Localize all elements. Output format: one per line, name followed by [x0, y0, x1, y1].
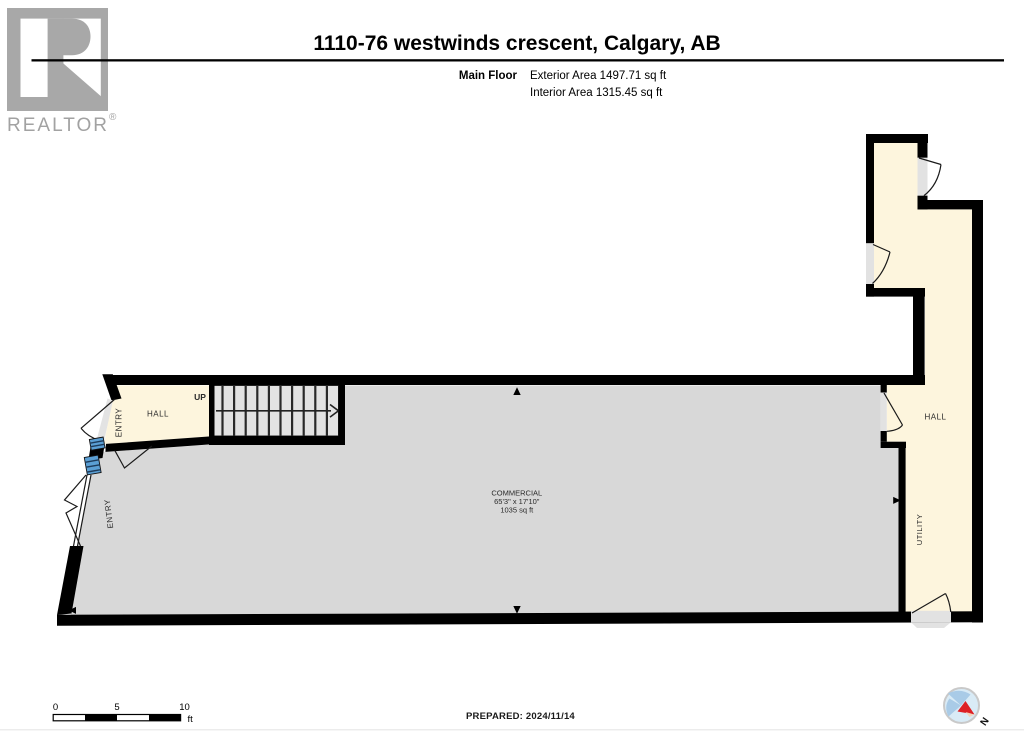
svg-text:ENTRY: ENTRY [115, 408, 124, 438]
svg-text:10: 10 [179, 702, 190, 713]
svg-text:1110-76 westwinds crescent, Ca: 1110-76 westwinds crescent, Calgary, AB [313, 32, 720, 55]
svg-text:Interior Area 1315.45 sq ft: Interior Area 1315.45 sq ft [530, 87, 663, 99]
svg-text:UTILITY: UTILITY [915, 514, 924, 545]
svg-text:N: N [977, 715, 990, 727]
svg-text:1035 sq ft: 1035 sq ft [500, 505, 534, 514]
svg-text:UP: UP [194, 392, 206, 402]
svg-text:®: ® [109, 112, 117, 123]
svg-text:PREPARED: 2024/11/14: PREPARED: 2024/11/14 [466, 711, 575, 722]
svg-text:Exterior Area 1497.71 sq ft: Exterior Area 1497.71 sq ft [530, 70, 667, 82]
svg-text:HALL: HALL [147, 410, 169, 419]
svg-text:0: 0 [53, 702, 58, 713]
svg-text:Main Floor: Main Floor [459, 70, 518, 82]
svg-text:5: 5 [114, 702, 119, 713]
svg-text:HALL: HALL [924, 413, 946, 422]
svg-text:ft: ft [188, 714, 194, 725]
svg-text:COMMERCIAL: COMMERCIAL [491, 488, 542, 497]
svg-text:REALTOR: REALTOR [7, 115, 109, 136]
